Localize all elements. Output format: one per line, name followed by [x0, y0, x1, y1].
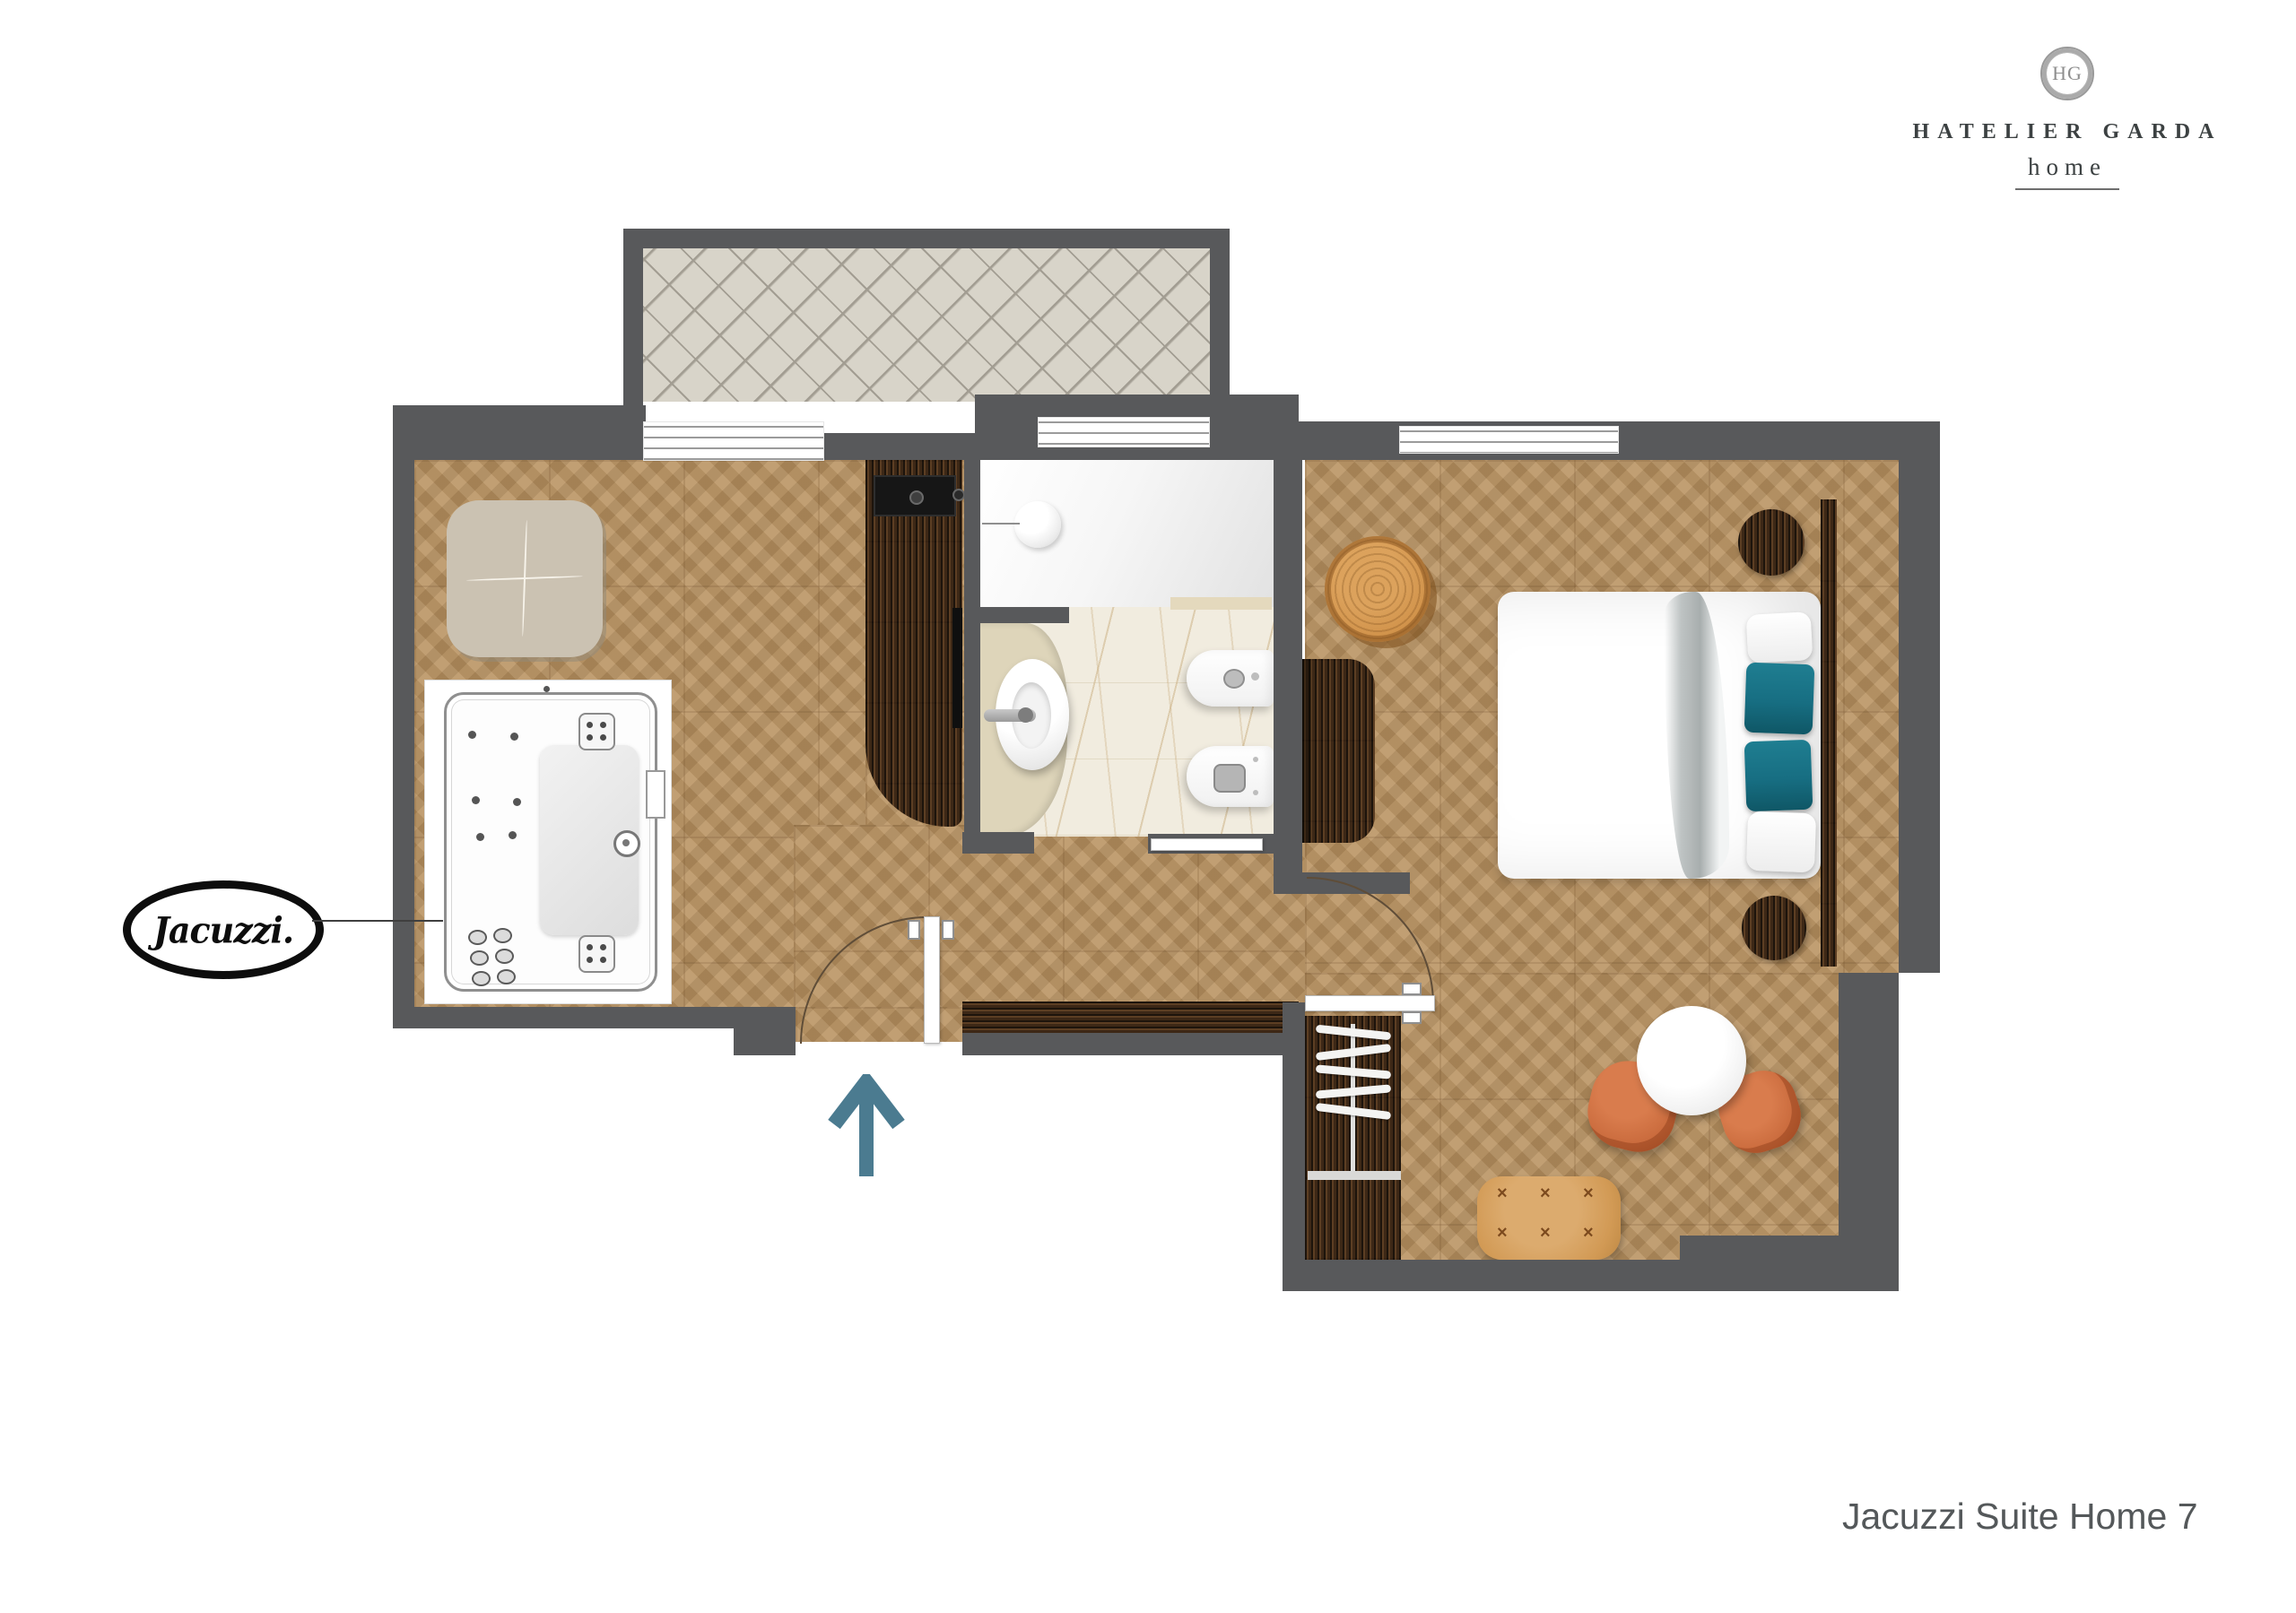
- teal-cushion: [1744, 663, 1815, 735]
- balcony-wall-top: [623, 229, 1230, 248]
- entry-door-frame-bracket: [908, 920, 920, 940]
- tv-cable-dot: [952, 489, 965, 501]
- jacuzzi-jet-large: [470, 950, 489, 966]
- toilet: [1187, 746, 1274, 807]
- wall-right-upper: [1899, 421, 1940, 973]
- wall-top-living-left: [393, 405, 646, 460]
- round-table: [1637, 1006, 1746, 1115]
- jacuzzi-jet-large: [495, 949, 514, 964]
- teal-cushion: [1744, 740, 1813, 812]
- bedroom-console: [1302, 659, 1375, 843]
- bedroom-door-frame-bracket: [1402, 983, 1422, 995]
- jacuzzi-control-knob: [613, 830, 640, 857]
- brand-initials: HG: [2052, 62, 2083, 85]
- balcony-wall-left: [623, 229, 643, 408]
- shower-curb: [1170, 597, 1272, 610]
- wall-left: [393, 405, 414, 1028]
- brand-subtitle: home: [2015, 153, 2119, 190]
- bedside-table: [1738, 509, 1805, 576]
- duvet-fold: [1665, 592, 1729, 879]
- wall-shower-divider: [979, 607, 1069, 623]
- brand-logo: HG HATELIER GARDA home: [1910, 47, 2224, 190]
- bidet: [1187, 650, 1274, 707]
- entry-door-leaf: [924, 916, 940, 1044]
- wall-bathroom-right: [1274, 460, 1302, 894]
- clothes-hanger: [1315, 1025, 1390, 1041]
- bed-pillow: [1746, 611, 1813, 663]
- wall-living-bottom: [393, 1007, 735, 1028]
- round-rug: [1325, 536, 1431, 642]
- jacuzzi-headrest-top: [578, 713, 615, 750]
- wardrobe: [1305, 1016, 1401, 1260]
- jacuzzi-tub: [444, 692, 657, 992]
- shower-arm: [982, 523, 1020, 525]
- balcony-tile-floor: [643, 248, 1210, 402]
- jacuzzi-jet: [476, 833, 484, 841]
- bedroom-door-frame-bracket: [1402, 1011, 1422, 1024]
- jacuzzi-jet-large: [472, 971, 491, 986]
- pocket-door-track: [952, 608, 962, 728]
- clothes-hanger: [1315, 1064, 1390, 1079]
- tv-screen: [874, 475, 956, 516]
- window-living: [644, 422, 823, 460]
- jacuzzi-brand-badge: Jacuzzi.: [123, 880, 324, 979]
- jacuzzi-jet: [510, 733, 518, 741]
- floor-plan-page: HG HATELIER GARDA home Jacuzzi Suite Hom…: [0, 0, 2296, 1613]
- jacuzzi-jet: [513, 798, 521, 806]
- bathroom-sliding-door: [1151, 838, 1263, 851]
- plan-title: Jacuzzi Suite Home 7: [1842, 1496, 2198, 1538]
- jacuzzi-brand-label: Jacuzzi.: [153, 908, 293, 950]
- toilet-hinge-dot: [1253, 757, 1258, 762]
- wardrobe-shelf: [1308, 1171, 1401, 1180]
- window-bathroom: [1039, 418, 1209, 447]
- ottoman: [447, 500, 603, 657]
- headboard-panel: [1821, 499, 1837, 967]
- clothes-hanger: [1315, 1084, 1390, 1098]
- sink-faucet-knob: [1018, 707, 1033, 723]
- bidet-faucet-dot: [1251, 672, 1259, 681]
- wall-entry-corner: [734, 1007, 796, 1055]
- jacuzzi-jet-large: [497, 969, 516, 984]
- jacuzzi-jet: [472, 796, 480, 804]
- toilet-hinge-dot: [1253, 790, 1258, 795]
- wall-bathroom-bottom-left: [962, 832, 1034, 854]
- jacuzzi-jet-large: [493, 928, 512, 943]
- wall-hallway-bottom: [962, 1033, 1283, 1055]
- wall-bottom-bedroom-left: [1283, 1260, 1680, 1291]
- entry-door-frame-bracket: [942, 920, 954, 940]
- jacuzzi-leader-line: [312, 920, 443, 922]
- wall-bedroom-left: [1283, 1002, 1305, 1291]
- shower-head: [1014, 501, 1061, 548]
- wall-bottom-bedroom-right: [1680, 1236, 1899, 1291]
- clothes-hanger: [1315, 1044, 1390, 1061]
- jacuzzi-jet: [509, 831, 517, 839]
- window-bedroom: [1400, 427, 1618, 453]
- jacuzzi-jet: [468, 731, 476, 739]
- wall-bathroom-left: [964, 447, 980, 849]
- wall-top-living-right: [822, 433, 978, 460]
- hallway-sideboard: [962, 1002, 1299, 1036]
- brand-monogram-icon: HG: [2040, 47, 2094, 100]
- jacuzzi-jet-large: [468, 930, 487, 945]
- tv-cabinet: [865, 460, 962, 827]
- round-stool: [1742, 896, 1806, 960]
- jacuzzi-handle: [646, 770, 665, 819]
- entry-direction-arrow: [825, 1074, 908, 1180]
- bedroom-door-leaf: [1305, 995, 1435, 1011]
- toilet-seat-opening: [1213, 764, 1246, 793]
- bidet-drain: [1223, 669, 1245, 689]
- tv-camera-dot: [909, 490, 924, 505]
- tufted-bench: ××× ×××: [1477, 1176, 1621, 1260]
- brand-name: HATELIER GARDA: [1910, 120, 2224, 144]
- jacuzzi-fitting-dot: [544, 686, 550, 692]
- bed-pillow: [1746, 811, 1816, 873]
- jacuzzi-headrest-bottom: [578, 935, 615, 973]
